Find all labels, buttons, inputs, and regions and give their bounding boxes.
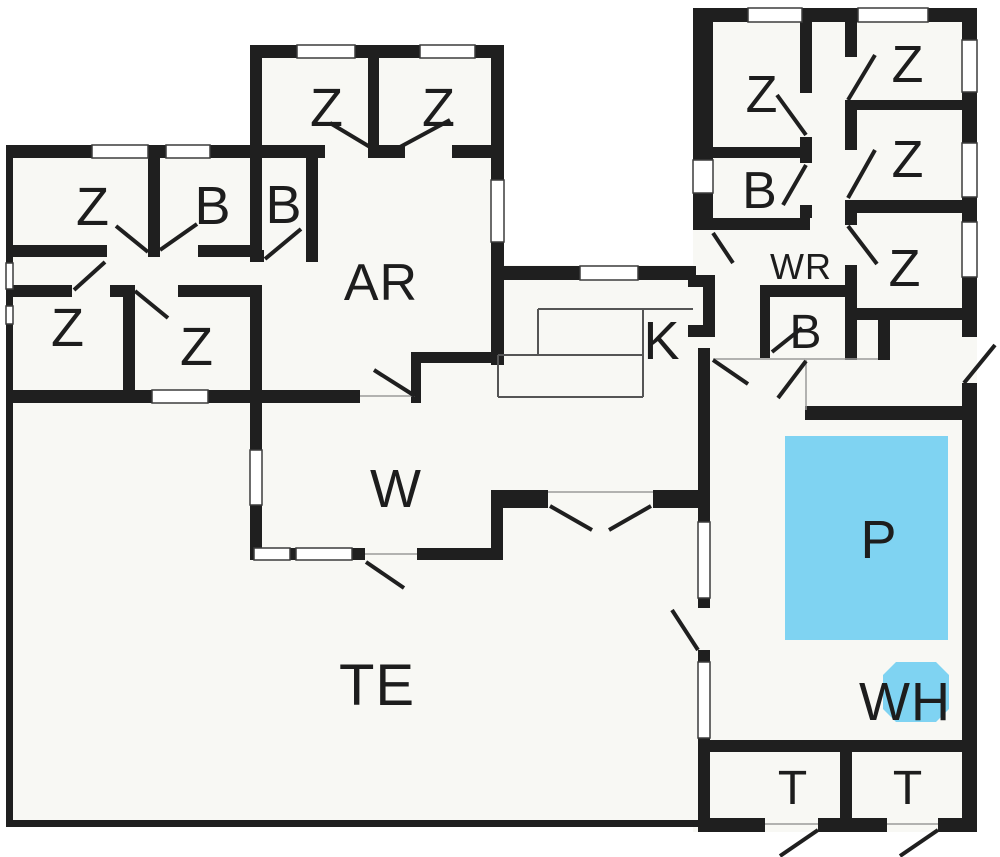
room-label-bedroom-right-nw: Z: [746, 69, 779, 121]
room-label-bedroom-center-right: Z: [422, 81, 456, 135]
floor-plan-drawing: [0, 0, 1000, 857]
room-label-living-w: W: [370, 462, 422, 516]
room-label-whirlpool: WH: [859, 675, 951, 729]
room-label-living-ar: AR: [344, 257, 418, 309]
room-label-corridor-wr: WR: [770, 249, 832, 285]
room-label-bedroom-left-south: Z: [180, 320, 214, 374]
room-label-bath-center: B: [265, 178, 302, 232]
room-label-bedroom-left-sw: Z: [51, 301, 85, 355]
room-label-bath-left: B: [194, 179, 231, 233]
room-label-bedroom-left-nw: Z: [76, 180, 110, 234]
room-label-toilet-left: T: [778, 765, 808, 813]
room-label-bath-right: B: [742, 165, 778, 217]
room-label-bedroom-east-3: Z: [889, 243, 922, 295]
floor-plan-page: Z B Z Z Z Z B AR K W TE Z B WR Z Z Z B P…: [0, 0, 1000, 857]
room-label-bedroom-east-2: Z: [892, 134, 925, 186]
room-label-bedroom-center-left: Z: [310, 81, 344, 135]
room-label-toilet-right: T: [893, 765, 923, 813]
room-label-kitchen: K: [643, 314, 680, 368]
room-label-bath-pool: B: [789, 309, 822, 357]
room-label-pool: P: [860, 513, 897, 567]
room-label-terrace: TE: [339, 657, 415, 715]
room-label-bedroom-east-1: Z: [892, 39, 925, 91]
